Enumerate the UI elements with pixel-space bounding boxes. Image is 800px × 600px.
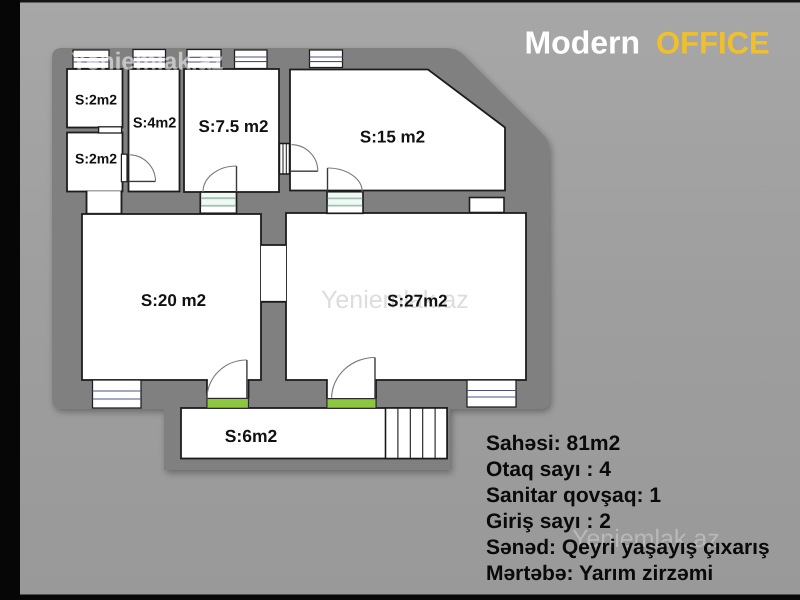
svg-text:Yeniemlak.az: Yeniemlak.az (71, 49, 224, 76)
svg-text:Otaq sayı : 4: Otaq sayı : 4 (486, 458, 611, 481)
svg-text:S:4m2: S:4m2 (133, 116, 177, 132)
svg-text:Sanitar qovşaq: 1: Sanitar qovşaq: 1 (486, 484, 661, 507)
svg-text:S:2m2: S:2m2 (75, 92, 117, 108)
svg-text:S:7.5 m2: S:7.5 m2 (199, 117, 269, 136)
svg-text:S:20 m2: S:20 m2 (141, 291, 206, 310)
svg-text:Sənəd: Qeyri yaşayış çıxarış: Sənəd: Qeyri yaşayış çıxarış (486, 536, 770, 559)
svg-text:S:15 m2: S:15 m2 (360, 128, 425, 147)
svg-text:Mərtəbə: Yarım zirzəmi: Mərtəbə: Yarım zirzəmi (486, 562, 713, 585)
svg-text:Sahəsi: 81m2: Sahəsi: 81m2 (486, 432, 620, 455)
svg-text:S:27m2: S:27m2 (387, 292, 447, 311)
svg-text:Giriş sayı : 2: Giriş sayı : 2 (486, 510, 611, 533)
svg-text:S:6m2: S:6m2 (225, 426, 278, 446)
svg-text:S:2m2: S:2m2 (75, 151, 117, 167)
